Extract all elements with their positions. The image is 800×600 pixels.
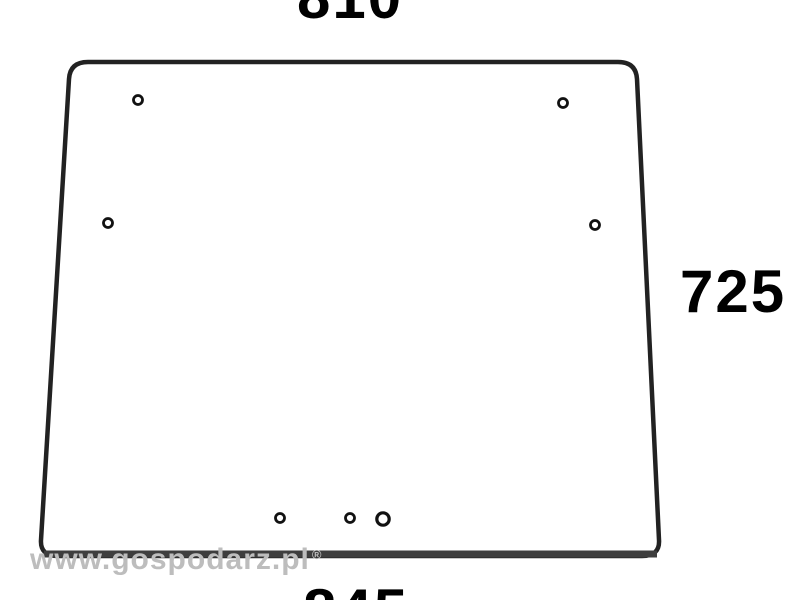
hole-mid-right xyxy=(591,221,600,230)
watermark: www.gospodarz.pl® xyxy=(30,545,323,575)
diagram-canvas: 810 725 845 www.gospodarz.pl® xyxy=(0,0,800,600)
glass-outline xyxy=(41,62,659,556)
watermark-text: www.gospodarz.pl xyxy=(30,543,310,576)
hole-bottom-mid xyxy=(346,514,355,523)
dimension-label-side-height: 725 xyxy=(680,262,786,322)
hole-top-left xyxy=(134,96,143,105)
hole-top-right xyxy=(559,99,568,108)
hole-bottom-left xyxy=(276,514,285,523)
hole-bottom-large xyxy=(377,513,389,525)
hole-mid-left xyxy=(104,219,113,228)
registered-trademark-icon: ® xyxy=(312,547,323,562)
dimension-label-bottom-width: 845 xyxy=(303,581,409,600)
dimension-label-top-width: 810 xyxy=(297,0,403,28)
